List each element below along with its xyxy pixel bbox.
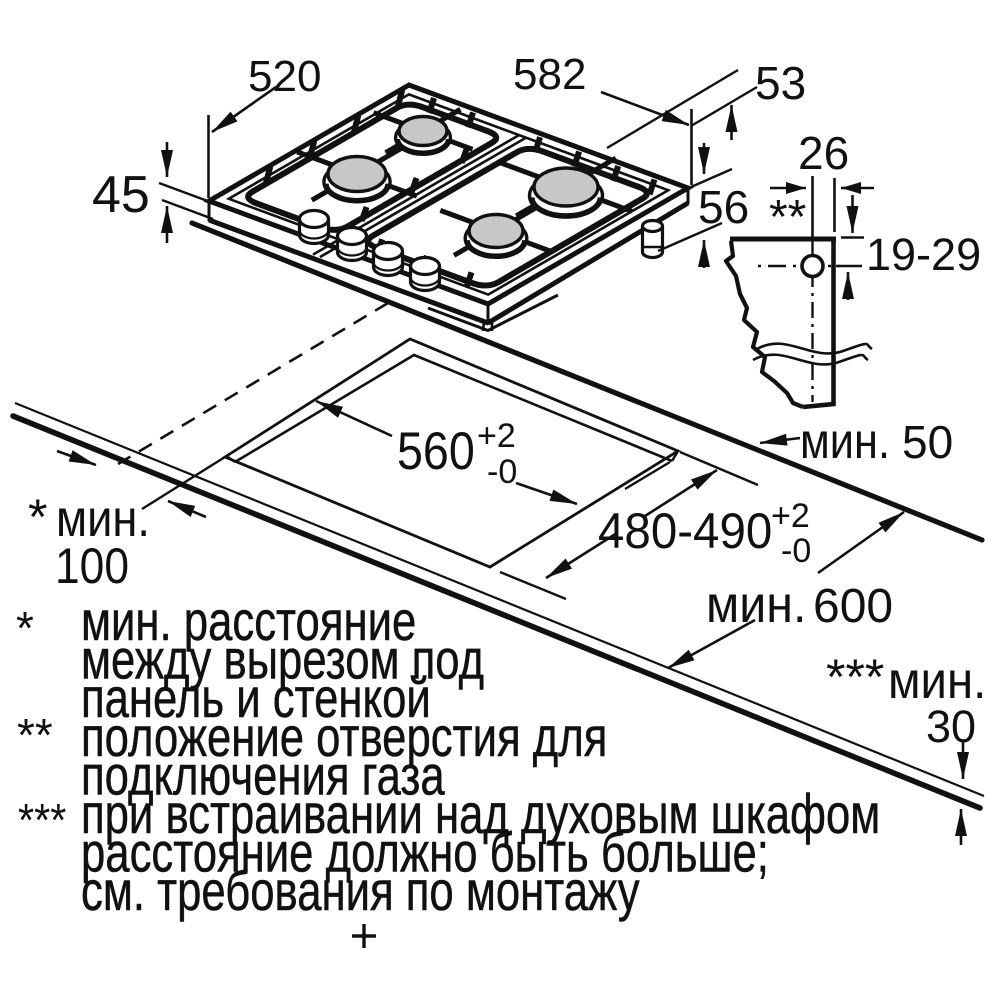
svg-text:+2: +2: [477, 417, 516, 455]
svg-text:19-29: 19-29: [866, 229, 981, 280]
svg-text:мин.: мин.: [800, 413, 890, 469]
svg-text:-0: -0: [781, 532, 811, 570]
svg-text:53: 53: [755, 57, 806, 109]
svg-text:**: **: [17, 709, 53, 761]
svg-text:56: 56: [698, 181, 749, 233]
svg-text:30: 30: [926, 701, 976, 752]
svg-text:*: *: [16, 602, 34, 654]
svg-text:100: 100: [55, 539, 129, 595]
svg-text:520: 520: [248, 52, 321, 101]
svg-text:*: *: [28, 489, 47, 545]
svg-text:***: ***: [18, 795, 66, 847]
svg-text:см. требования по монтажу: см. требования по монтажу: [81, 860, 640, 922]
svg-text:мин.: мин.: [706, 575, 806, 633]
svg-text:560: 560: [397, 421, 475, 480]
svg-text:-0: -0: [487, 453, 517, 491]
svg-text:50: 50: [902, 416, 953, 468]
svg-text:45: 45: [92, 166, 150, 224]
svg-text:582: 582: [513, 50, 586, 99]
svg-text:480-490: 480-490: [598, 504, 772, 559]
svg-text:+2: +2: [771, 497, 810, 535]
svg-text:26: 26: [798, 127, 849, 179]
svg-text:600: 600: [813, 580, 893, 633]
svg-text:**: **: [769, 191, 806, 244]
svg-text:***: ***: [826, 649, 884, 705]
